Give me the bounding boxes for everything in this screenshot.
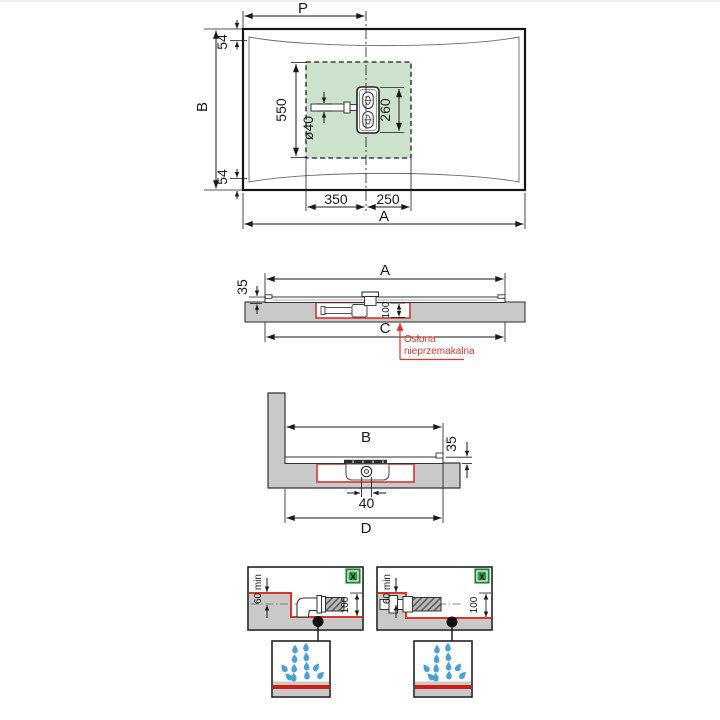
dim-260-label: 260 [377, 98, 393, 122]
badge-left: X [346, 569, 360, 583]
drain-grate-edge [344, 460, 387, 464]
dim-a-plan-label: A [379, 208, 389, 225]
cross-section: B 35 40 D [268, 393, 472, 537]
dim-60min-left-label: 60 min [253, 574, 264, 604]
dim-100-long-label: 100 [381, 301, 392, 318]
badge-right-label: X [479, 572, 485, 582]
dim-35-cross-label: 35 [443, 436, 459, 452]
dim-550-label: 550 [273, 98, 289, 122]
install-detail-left: 60 min 100 X [248, 567, 363, 697]
tray-profile-cross [285, 453, 443, 464]
callout-dot [313, 616, 324, 627]
dim-c-label: C [380, 320, 391, 337]
dim-p: P [243, 0, 365, 28]
waterproof-note: Osłona nieprzemakalna [404, 334, 488, 357]
install-detail-right: 60 min 100 X [377, 567, 492, 697]
spray-box-left [272, 641, 330, 697]
dim-40-label: 40 [359, 495, 375, 511]
dim-35-long-label: 35 [234, 279, 250, 295]
spray-box-right [414, 641, 472, 697]
dim-54-top-label: 54 [214, 34, 230, 50]
dim-b-plan-label: B [194, 102, 211, 112]
dim-p-label: P [298, 0, 308, 17]
callout-dot [447, 617, 458, 628]
dim-350-label: 350 [324, 191, 348, 207]
plan-view: 550 ø40 260 P B [194, 0, 525, 229]
dim-a-section: A [265, 262, 505, 295]
tray-profile-long [265, 295, 505, 303]
dim-100-left-label: 100 [340, 596, 351, 613]
dim-60min-right-label: 60 min [382, 574, 393, 604]
dim-b-cross: B [287, 423, 444, 455]
dim-100-right-label: 100 [469, 596, 480, 613]
dim-a-section-label: A [380, 262, 390, 279]
image-top-border [0, 0, 720, 2]
dim-b-plan: B [194, 29, 242, 190]
dim-d-label: D [361, 520, 372, 537]
dim-54-bottom-label: 54 [214, 169, 230, 185]
badge-left-label: X [350, 572, 356, 582]
dim-b-cross-label: B [361, 429, 371, 446]
badge-right: X [475, 569, 489, 583]
drain-cover [357, 87, 379, 133]
dim-pipe-diameter-label: ø40 [300, 116, 316, 140]
shower-tray-technical-drawing: 550 ø40 260 P B [0, 0, 720, 720]
trap-cross [346, 464, 389, 480]
dim-250-label: 250 [376, 191, 400, 207]
